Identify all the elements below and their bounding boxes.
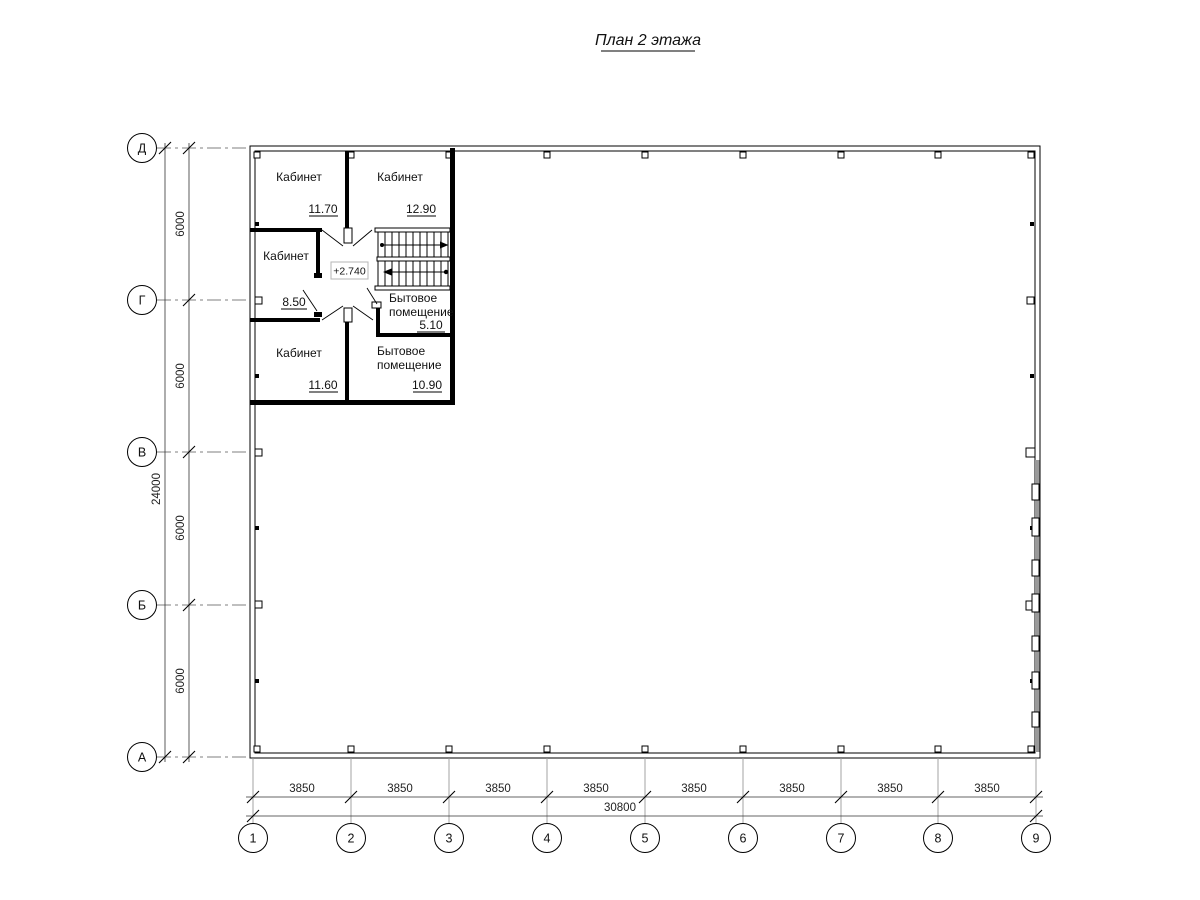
axis-col-label-9: 9	[1033, 832, 1040, 846]
room-area: 12.90	[406, 202, 436, 216]
room-area: 5.10	[419, 318, 443, 332]
room-name: Кабинет	[276, 346, 322, 360]
dim-col-segment-3: 3850	[485, 783, 511, 795]
axis-col-label-5: 5	[642, 832, 649, 846]
corridor-bottom-door-post	[344, 308, 352, 322]
page-title: План 2 этажа	[595, 32, 701, 49]
axis-col-label-2: 2	[348, 832, 355, 846]
axis-row-label-G: Г	[139, 294, 146, 308]
room-name: Бытовое	[389, 291, 437, 305]
wall-between-rooms-bottom	[345, 322, 349, 402]
room-name-line2: помещение	[377, 358, 442, 372]
dim-col-segment-4: 3850	[583, 783, 609, 795]
corridor-top-door-post	[344, 228, 352, 243]
room-area: 11.70	[308, 202, 337, 216]
utility-510-west-wall	[376, 305, 380, 337]
level-mark-value: +2.740	[333, 266, 366, 278]
office-850-door-jamb-top	[314, 273, 322, 278]
stair-landing-edge	[377, 257, 450, 261]
room-area: 10.90	[412, 378, 442, 392]
row-axis-bubbles: Д Г В Б А	[128, 134, 157, 772]
floor-plan-drawing: План 2 этажа	[0, 0, 1200, 900]
column-extension-lines	[253, 758, 1036, 823]
dim-col-segment-5: 3850	[681, 783, 707, 795]
office-850-south-wall	[250, 318, 320, 322]
vertical-dimensions: 6000 6000 6000 6000 24000	[151, 142, 195, 763]
axis-col-label-3: 3	[446, 832, 453, 846]
building-outline	[250, 146, 1040, 758]
dim-rows-total: 24000	[151, 473, 163, 505]
dim-col-segment-8: 3850	[974, 783, 1000, 795]
room-area: 11.60	[308, 378, 337, 392]
row-axis-lines	[157, 148, 250, 757]
corridor-north-wall	[250, 228, 322, 232]
room-name: Кабинет	[276, 170, 322, 184]
dim-row-segment-2: 6000	[175, 363, 187, 389]
dim-cols-total: 30800	[604, 802, 636, 814]
level-mark: +2.740	[331, 262, 368, 279]
axis-col-label-7: 7	[838, 832, 845, 846]
dim-col-segment-1: 3850	[289, 783, 315, 795]
axis-col-label-6: 6	[740, 832, 747, 846]
block-east-wall	[450, 148, 455, 405]
column-axis-bubbles: 1 2 3 4 5 6 7 8 9	[239, 824, 1051, 853]
dim-row-segment-1: 6000	[175, 211, 187, 237]
axis-col-label-1: 1	[250, 832, 257, 846]
room-name: Кабинет	[377, 170, 423, 184]
horizontal-dimensions: 3850 3850 3850 3850 3850 3850 3850 3850 …	[246, 783, 1043, 822]
office-850-east-wall	[316, 230, 320, 278]
drawing-title: План 2 этажа	[595, 32, 701, 51]
dim-row-segment-3: 6000	[175, 515, 187, 541]
dim-col-segment-7: 3850	[877, 783, 903, 795]
axis-row-label-D: Д	[138, 142, 147, 156]
wall-between-offices-top	[345, 151, 349, 230]
block-south-wall	[250, 400, 455, 405]
dim-col-segment-2: 3850	[387, 783, 413, 795]
room-name: Кабинет	[263, 249, 309, 263]
utility-510-south-wall	[376, 333, 455, 337]
office-850-door-jamb-bottom	[314, 312, 322, 317]
axis-col-label-4: 4	[544, 832, 551, 846]
axis-row-label-A: А	[138, 751, 147, 765]
dim-col-segment-6: 3850	[779, 783, 805, 795]
room-area: 8.50	[282, 295, 306, 309]
room-name-line2: помещение	[389, 305, 454, 319]
axis-col-label-8: 8	[935, 832, 942, 846]
dim-row-segment-4: 6000	[175, 668, 187, 694]
axis-row-label-B: Б	[138, 599, 146, 613]
room-name: Бытовое	[377, 344, 425, 358]
floor-plan-page: План 2 этажа	[0, 0, 1200, 900]
axis-row-label-V: В	[138, 446, 146, 460]
